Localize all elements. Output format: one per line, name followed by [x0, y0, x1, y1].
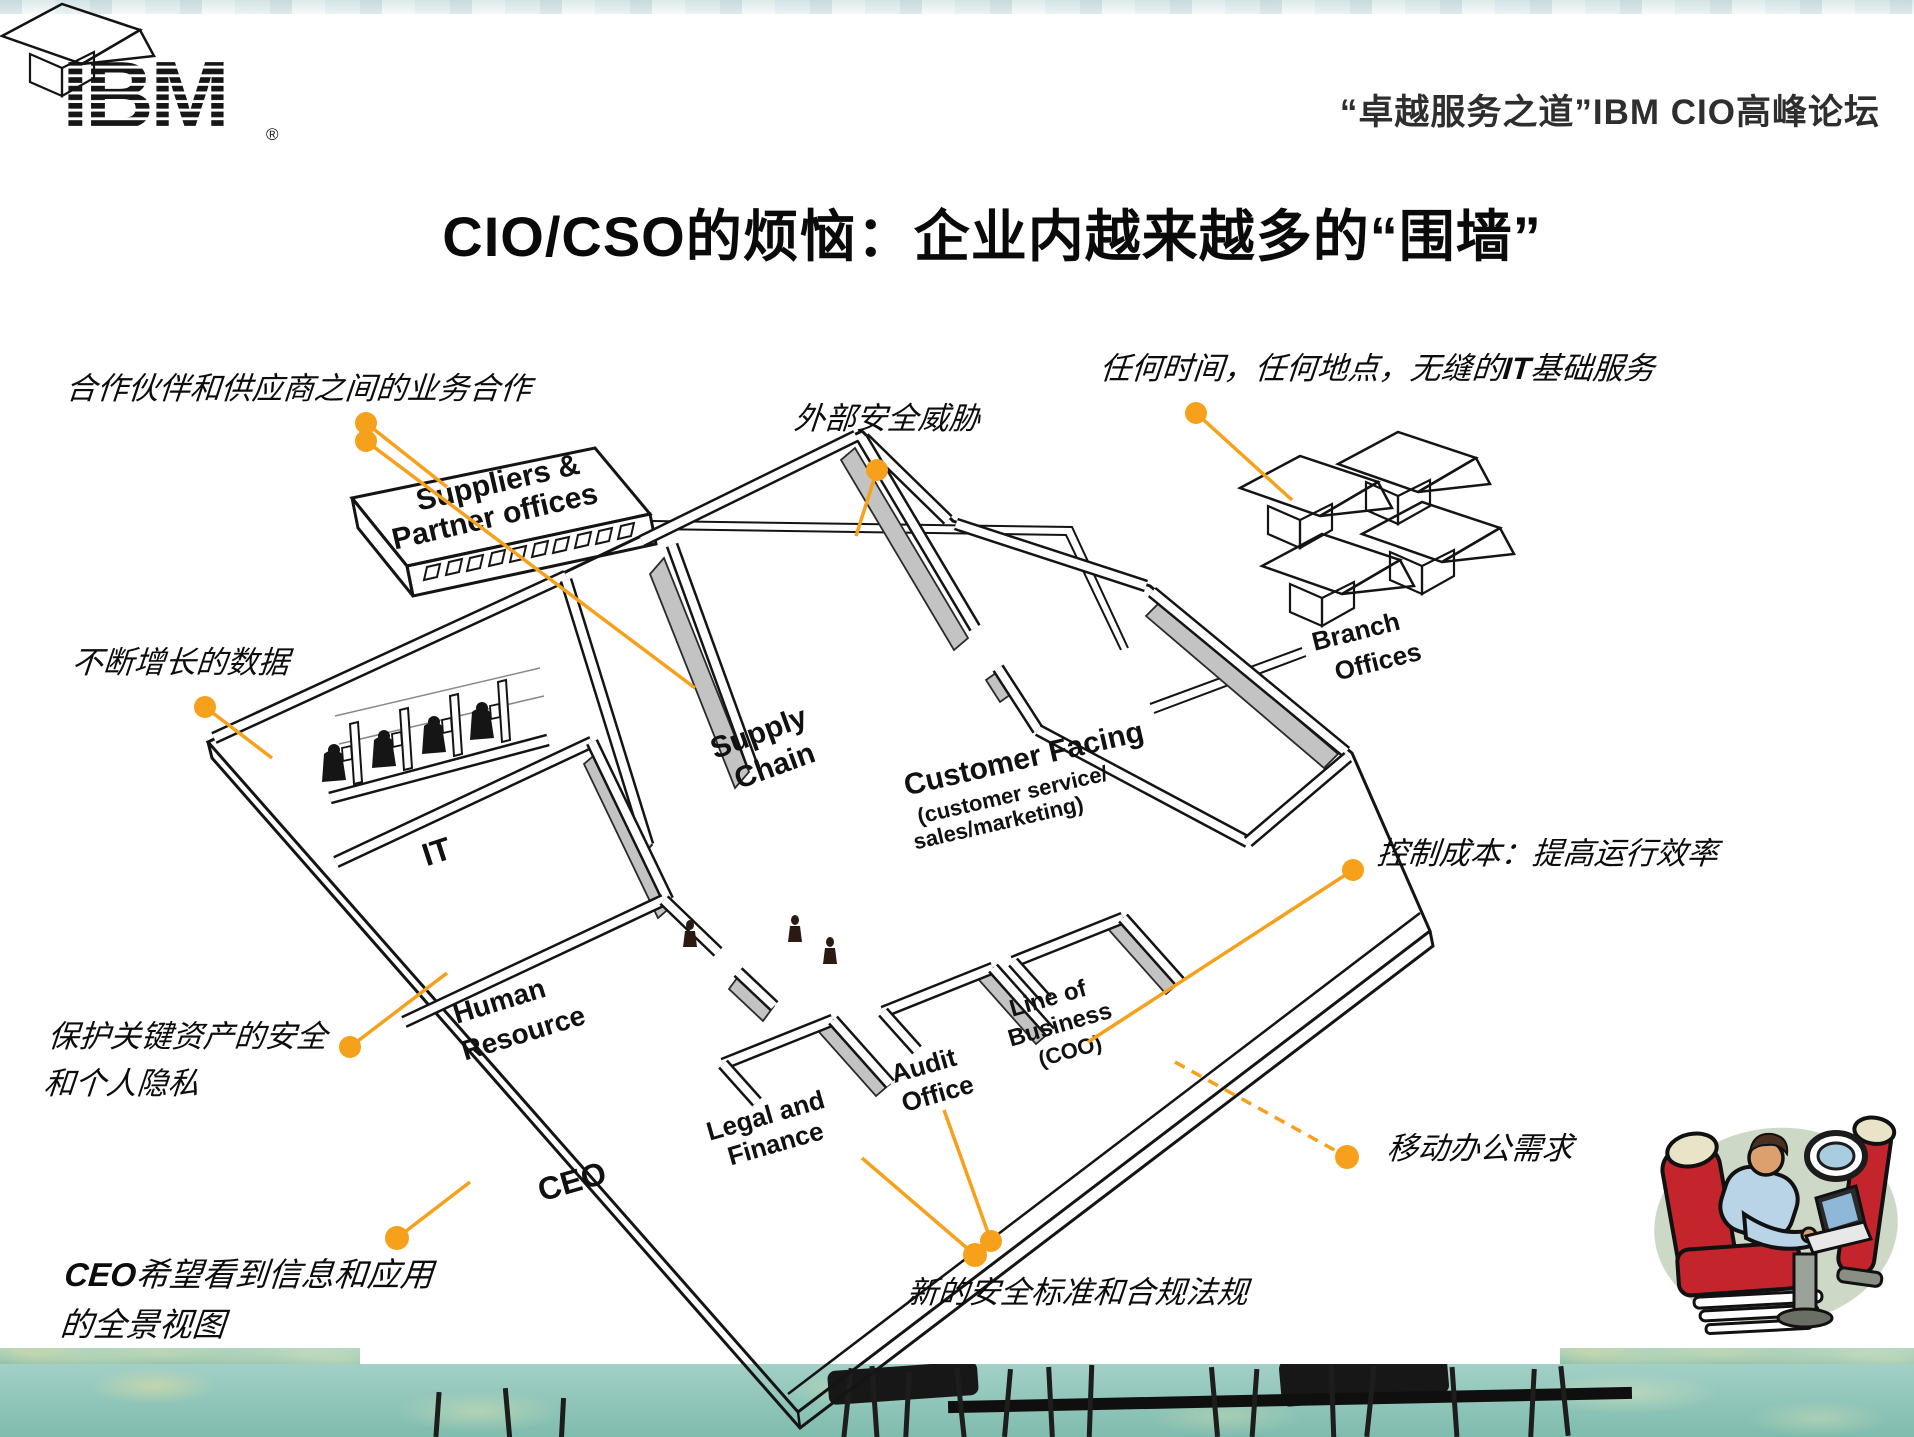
branch-house — [1240, 456, 1392, 548]
annotation-ceo-prefix: CEO — [63, 1256, 138, 1293]
annotation-control-cost: 控制成本：提高运行效率 — [1375, 831, 1720, 878]
annotation-anytime-suffix: 基础服务 — [1529, 351, 1656, 386]
slide: { "slide": { "logo_text": "IBM", "regist… — [0, 0, 1914, 1437]
cubicle-worker — [470, 680, 510, 742]
mobile-worker-clipart — [1648, 1094, 1904, 1346]
annotation-partner-collab: 合作伙伴和供应商之间的业务合作 — [64, 366, 533, 413]
cubicle-worker — [372, 708, 412, 770]
annotation-protect-line1: 保护关键资产的安全 — [46, 1014, 329, 1061]
annotation-anytime-it: 任何时间，任何地点，无缝的IT基础服务 — [1098, 346, 1657, 393]
annotation-external-threat: 外部安全威胁 — [792, 396, 982, 443]
office-walls-diagram: Suppliers & Partner offices Branch Offic… — [0, 0, 1914, 1437]
room-label-it: IT — [418, 830, 457, 873]
annotation-ceo-view: CEO希望看到信息和应用 的全景视图 — [58, 1250, 435, 1351]
annotation-protect-assets: 保护关键资产的安全 和个人隐私 — [42, 1014, 329, 1107]
annotation-ceo-line2: 的全景视图 — [58, 1302, 431, 1352]
cubicle-worker — [422, 694, 462, 756]
annotation-new-compliance: 新的安全标准和合规法规 — [905, 1270, 1250, 1317]
annotation-growing-data: 不断增长的数据 — [70, 640, 291, 687]
cubicle-worker — [322, 722, 362, 784]
airplane-window-icon — [1807, 1133, 1865, 1179]
branch-house — [1338, 432, 1490, 524]
annotation-anytime-it-bold: IT — [1502, 351, 1533, 386]
annotation-anytime-prefix: 任何时间，任何地点，无缝的 — [1099, 351, 1505, 386]
annotation-mobile-office: 移动办公需求 — [1385, 1126, 1575, 1173]
annotation-protect-line2: 和个人隐私 — [42, 1061, 325, 1108]
suppliers-building: Suppliers & Partner offices — [352, 448, 656, 596]
annotation-ceo-line1: 希望看到信息和应用 — [135, 1258, 435, 1294]
branch-house — [1362, 502, 1514, 594]
network-connector-lines — [652, 521, 1306, 713]
